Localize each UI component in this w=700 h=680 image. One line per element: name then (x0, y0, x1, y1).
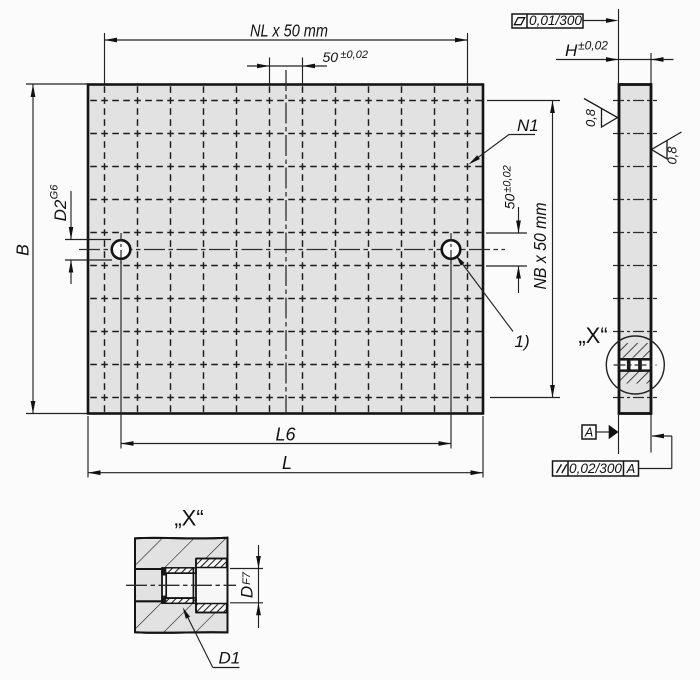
svg-text:0,8: 0,8 (665, 146, 680, 165)
svg-text:B: B (13, 244, 33, 256)
svg-text:NL x 50 mm: NL x 50 mm (250, 21, 328, 41)
svg-text:„X“: „X“ (578, 323, 607, 348)
svg-text:„X“: „X“ (174, 506, 203, 531)
svg-text:N1: N1 (517, 116, 539, 135)
svg-text:G6: G6 (49, 184, 61, 200)
svg-text:50: 50 (323, 49, 339, 65)
svg-text:±0,02: ±0,02 (578, 39, 608, 53)
svg-text:1): 1) (515, 332, 530, 351)
svg-text:L6: L6 (275, 425, 296, 445)
svg-text:NB x 50 mm: NB x 50 mm (530, 203, 550, 290)
svg-text:F7: F7 (241, 571, 253, 585)
svg-text:0,01/300: 0,01/300 (529, 13, 582, 28)
svg-text:±0,02: ±0,02 (502, 165, 514, 192)
svg-text:±0,02: ±0,02 (341, 49, 368, 61)
svg-text:0,8: 0,8 (583, 108, 598, 127)
svg-text:H: H (565, 41, 578, 60)
svg-text:50: 50 (502, 194, 518, 210)
svg-text:0,02/300: 0,02/300 (569, 461, 622, 476)
svg-text:D: D (238, 586, 257, 598)
svg-text:D2: D2 (51, 199, 70, 221)
svg-text:L: L (282, 453, 292, 473)
svg-text:A: A (626, 461, 636, 476)
svg-text:A: A (584, 425, 593, 439)
svg-text:D1: D1 (219, 649, 241, 668)
